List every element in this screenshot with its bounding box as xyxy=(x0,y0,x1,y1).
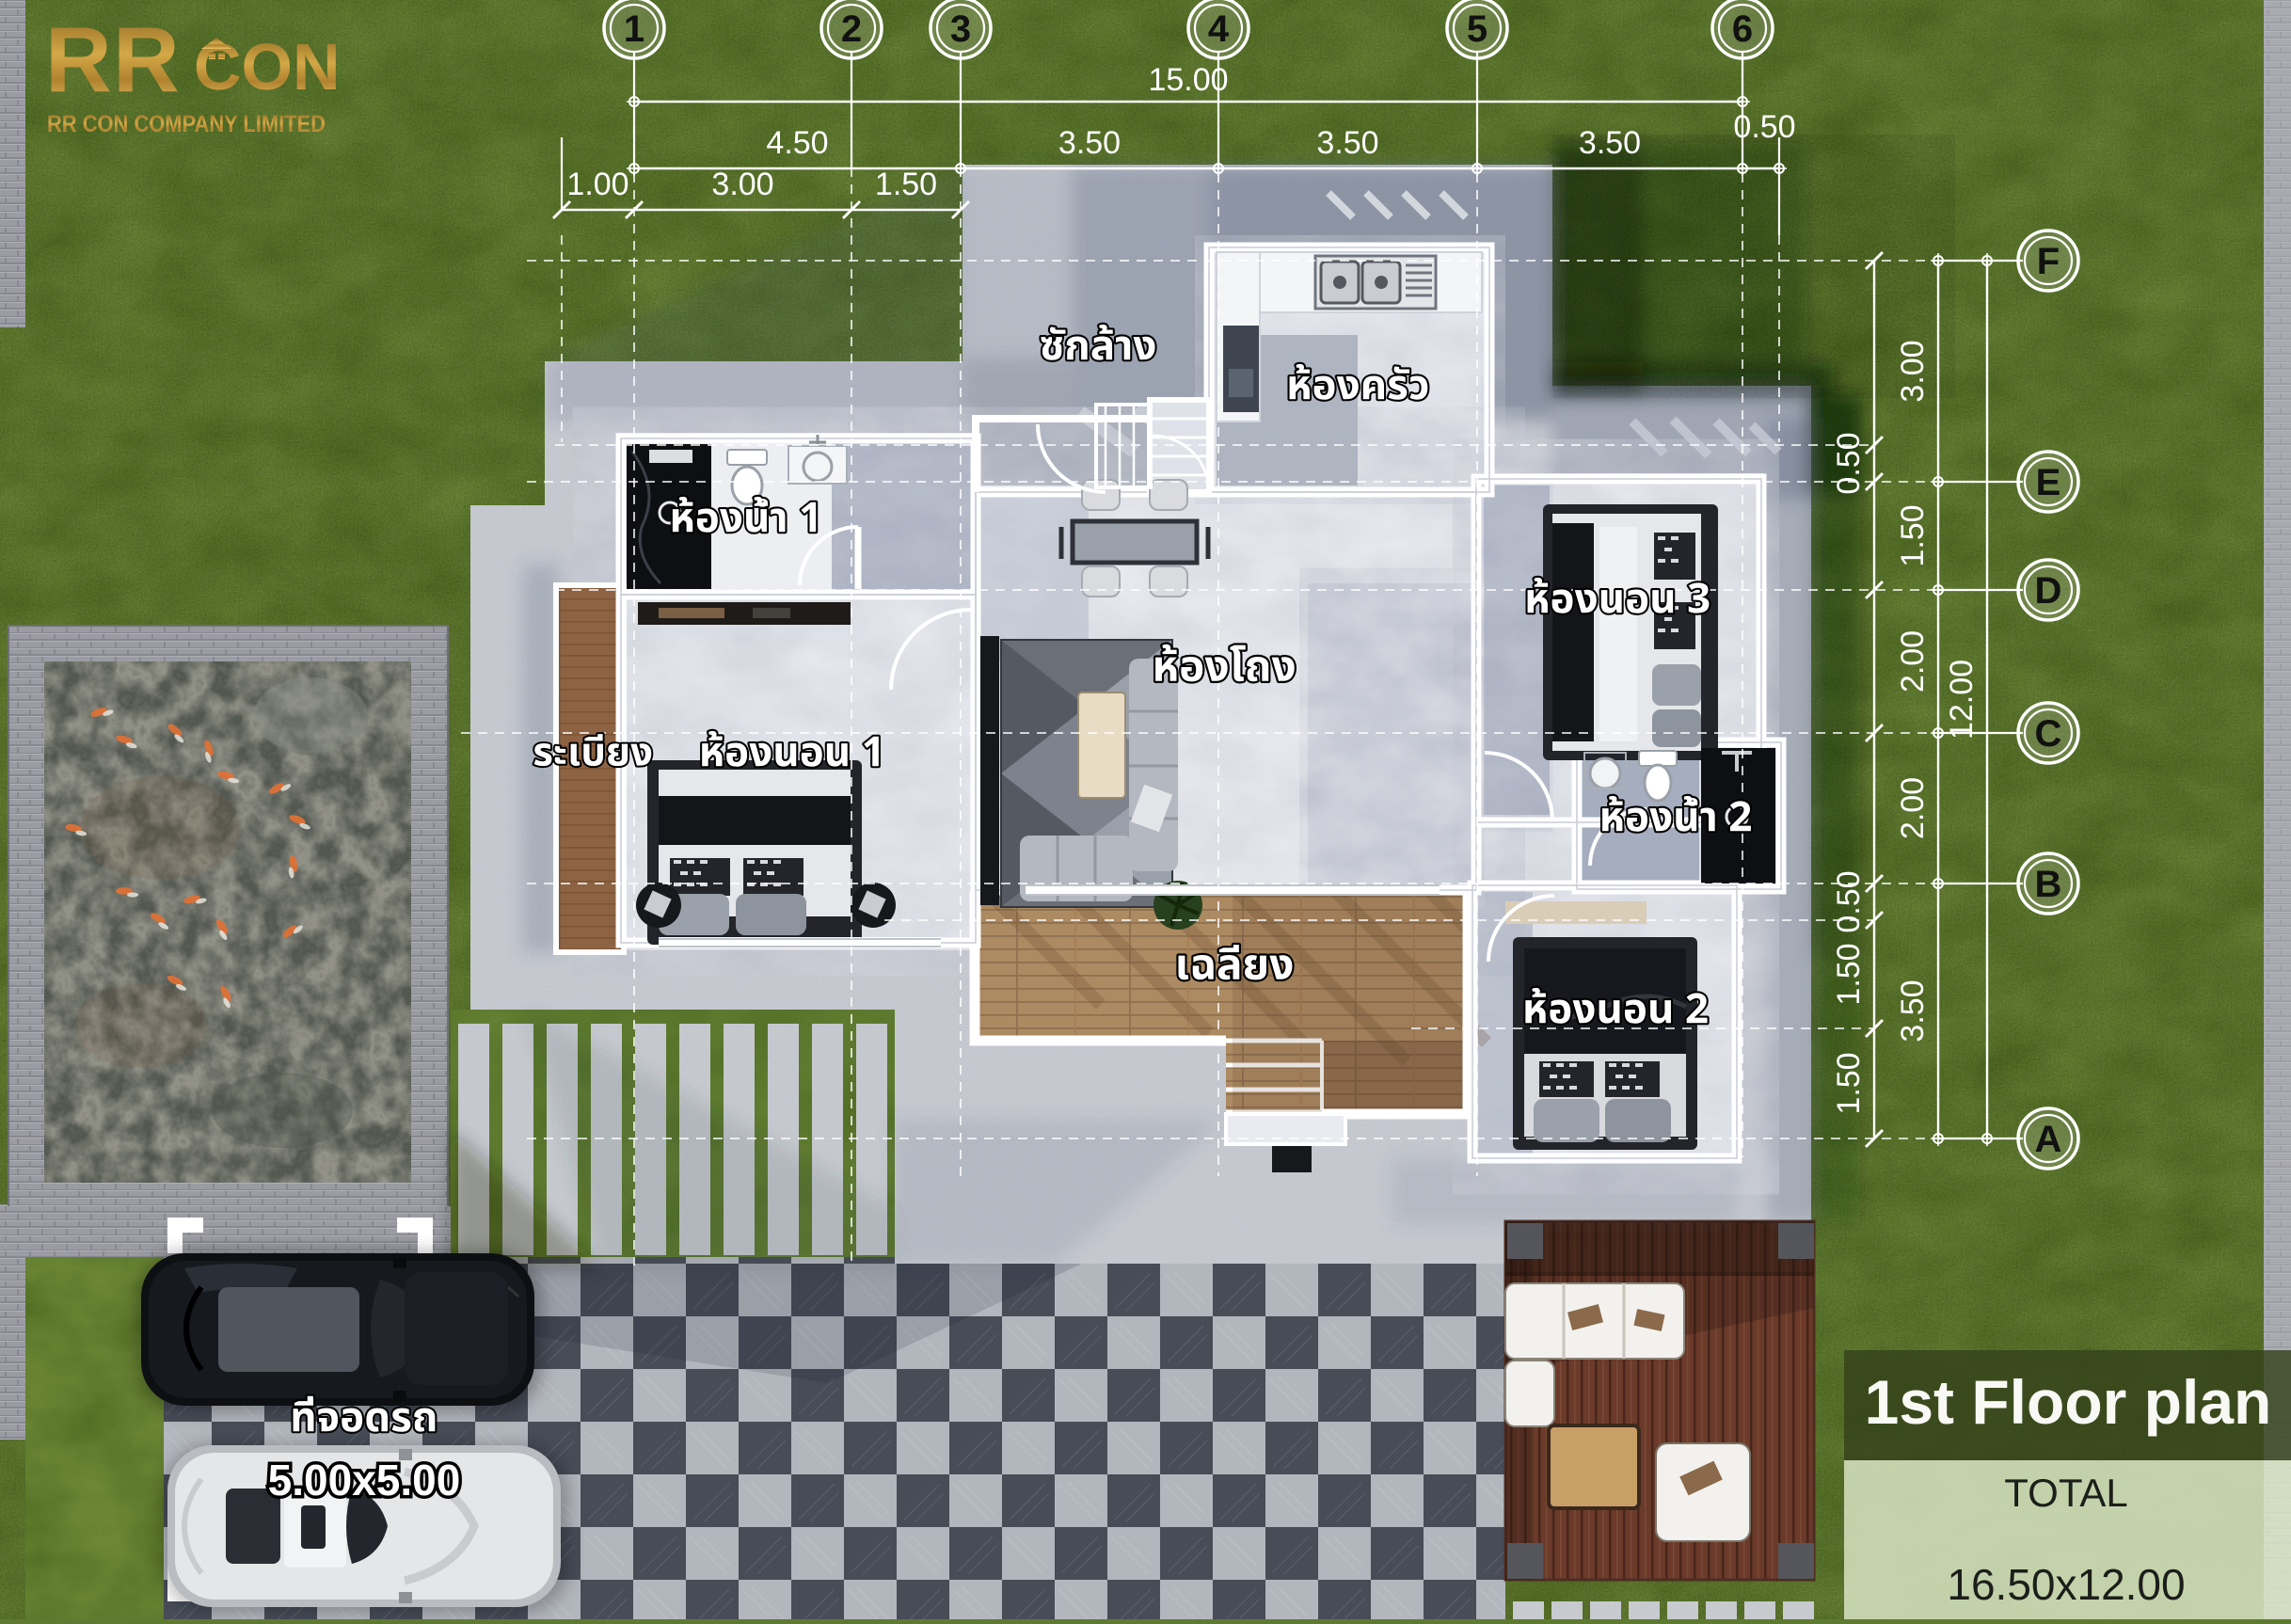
svg-text:2.00: 2.00 xyxy=(1895,630,1931,693)
svg-text:1.50: 1.50 xyxy=(1895,504,1931,566)
svg-text:A: A xyxy=(2035,1119,2062,1160)
svg-text:5.00x5.00: 5.00x5.00 xyxy=(268,1456,461,1505)
svg-text:C: C xyxy=(2035,713,2062,755)
svg-text:4.50: 4.50 xyxy=(766,125,828,161)
svg-text:2.00: 2.00 xyxy=(1895,777,1931,839)
svg-text:1.00: 1.00 xyxy=(566,167,628,202)
svg-text:1st Floor plan: 1st Floor plan xyxy=(1865,1367,2272,1437)
svg-text:15.00: 15.00 xyxy=(1148,62,1228,98)
svg-text:0.50: 0.50 xyxy=(1831,432,1867,494)
svg-text:R: R xyxy=(113,8,180,111)
svg-text:RR CON COMPANY LIMITED: RR CON COMPANY LIMITED xyxy=(47,111,326,137)
svg-text:1: 1 xyxy=(624,8,644,50)
svg-text:3: 3 xyxy=(950,8,971,50)
svg-text:1.50: 1.50 xyxy=(875,167,937,202)
svg-text:1.50: 1.50 xyxy=(1831,943,1867,1005)
svg-text:E: E xyxy=(2036,462,2061,503)
svg-text:3.50: 3.50 xyxy=(1895,979,1931,1042)
svg-text:5: 5 xyxy=(1467,8,1488,50)
svg-text:R: R xyxy=(45,8,112,111)
svg-text:3.50: 3.50 xyxy=(1316,125,1378,161)
svg-text:12.00: 12.00 xyxy=(1944,660,1980,740)
svg-text:F: F xyxy=(2037,241,2060,282)
svg-text:3.00: 3.00 xyxy=(711,167,773,202)
svg-text:3.50: 3.50 xyxy=(1579,125,1641,161)
svg-text:TOTAL: TOTAL xyxy=(2004,1471,2127,1515)
svg-text:2: 2 xyxy=(841,8,862,50)
svg-text:16.50x12.00: 16.50x12.00 xyxy=(1947,1560,2185,1609)
svg-text:1.50: 1.50 xyxy=(1831,1052,1867,1114)
svg-text:D: D xyxy=(2035,570,2062,612)
svg-text:3.50: 3.50 xyxy=(1058,125,1121,161)
svg-text:4: 4 xyxy=(1208,8,1230,50)
svg-text:0.50: 0.50 xyxy=(1831,870,1867,932)
svg-text:6: 6 xyxy=(1732,8,1753,50)
svg-text:B: B xyxy=(2035,864,2062,905)
svg-text:3.00: 3.00 xyxy=(1895,340,1931,402)
